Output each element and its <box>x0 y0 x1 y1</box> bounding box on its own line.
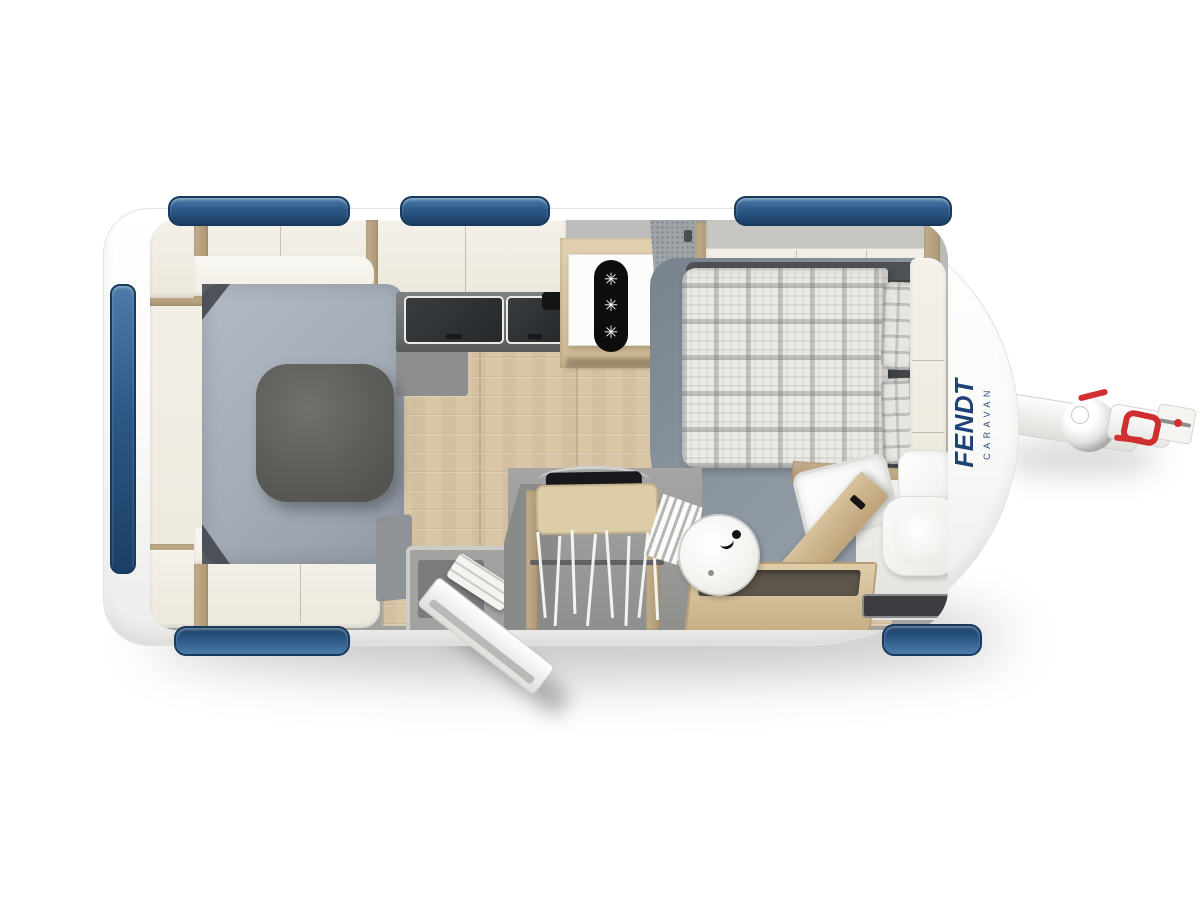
french-bed-duvet <box>682 268 888 468</box>
hanger-icon <box>571 530 577 614</box>
logo-brand-text: FENDT <box>949 378 980 467</box>
fridge-cabinet-shadow <box>566 358 656 368</box>
washbasin <box>678 514 760 596</box>
snowflake-icon: ✳ <box>604 297 618 314</box>
hitch-pin-red <box>1174 419 1182 427</box>
snowflake-icon: ✳ <box>604 271 618 288</box>
window-top-kitchen <box>400 196 550 226</box>
hangers-group <box>534 528 664 628</box>
locker-seam-2 <box>465 224 466 292</box>
window-bottom-lounge <box>174 626 350 656</box>
overhead-locker-kitchen <box>368 220 566 296</box>
jockey-wheel-hub <box>1071 406 1089 424</box>
bed-frame-seam-2 <box>912 432 944 433</box>
snowflake-icon: ✳ <box>604 324 618 341</box>
hanger-icon <box>605 530 614 618</box>
toilet-seat <box>892 505 948 565</box>
bathroom-window-strip <box>862 594 948 618</box>
interior-floorplan: ✳ ✳ ✳ <box>150 220 948 630</box>
sideboard-end-gray <box>396 346 468 396</box>
window-rear <box>110 284 136 574</box>
hanger-icon <box>536 532 546 618</box>
window-top-lounge <box>168 196 350 226</box>
hanger-icon <box>624 536 630 626</box>
fridge-door: ✳ ✳ ✳ <box>568 254 654 346</box>
hanger-icon <box>586 534 597 626</box>
sink-cover-handle <box>446 334 462 339</box>
window-bottom-bathroom <box>882 624 982 656</box>
basin-drain <box>708 570 714 576</box>
bathroom-door-handle <box>849 494 866 510</box>
bed-frame-seam-1 <box>912 360 944 361</box>
locker-seam-3 <box>300 556 301 622</box>
logo-subtitle-text: CARAVAN <box>982 386 992 460</box>
caravan-floorplan: ✳ ✳ ✳ <box>0 0 1200 900</box>
toilet-bowl <box>882 496 948 576</box>
dinette-table <box>256 364 394 502</box>
hob-cover-handle <box>528 334 542 339</box>
coat-hook <box>684 230 692 242</box>
kitchen-counter <box>396 292 566 352</box>
basin-spout <box>719 536 736 551</box>
basin-faucet <box>732 530 741 539</box>
fendt-caravan-logo: FENDT CARAVAN <box>945 361 995 485</box>
window-top-bed <box>734 196 952 226</box>
hanger-icon <box>554 536 562 626</box>
fridge-freezer-symbol: ✳ ✳ ✳ <box>594 260 628 352</box>
sink-cover <box>404 296 504 344</box>
